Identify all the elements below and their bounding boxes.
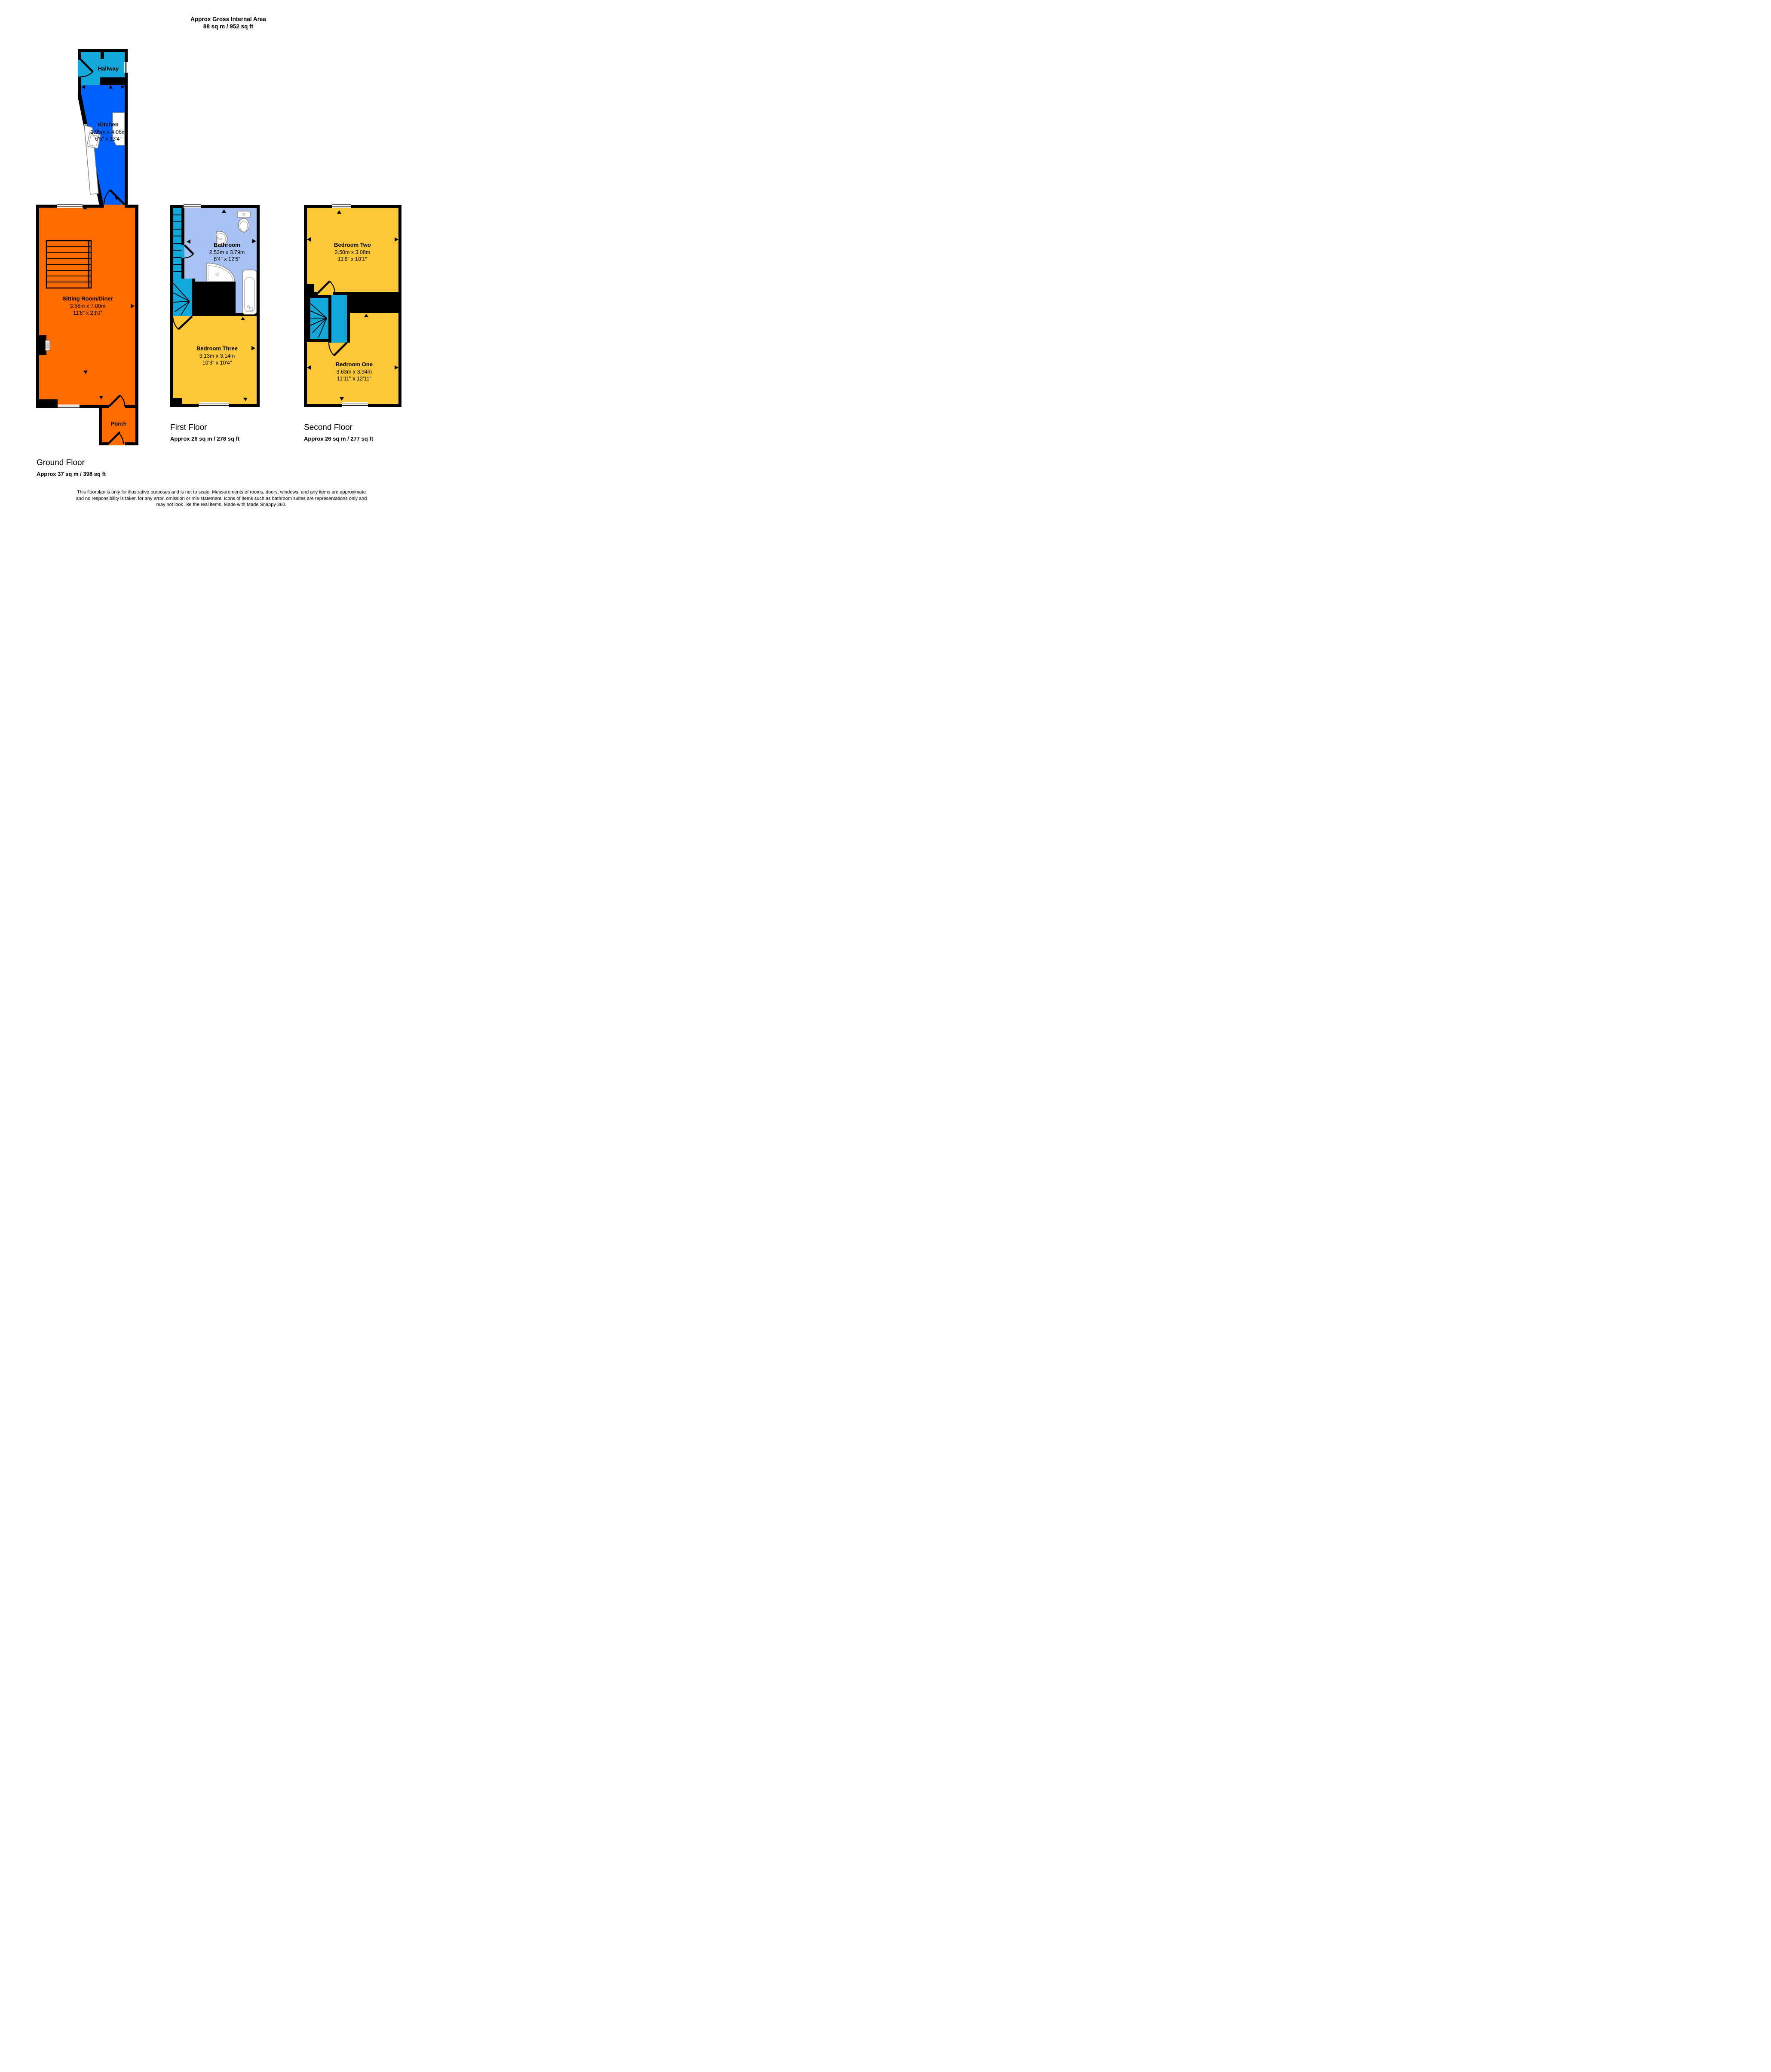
kitchen-label: Kitchen 1.95m x 4.06m 6'5" x 13'4" [91, 121, 126, 143]
landing-wall [192, 279, 195, 316]
bedroom-two-window [332, 203, 351, 208]
bathroom-side-wall [232, 285, 236, 313]
first-floor-plan [169, 202, 261, 409]
sitting-room-label: Sitting Room/Diner 3.56m x 7.00m 11'8" x… [62, 295, 113, 317]
floorplan-canvas: Approx Gross Internal Area 88 sq m / 952… [0, 0, 443, 518]
ground-floor-caption: Ground Floor Approx 37 sq m / 398 sq ft [37, 458, 106, 477]
porch-label: Porch [111, 420, 127, 428]
title-line1: Approx Gross Internal Area [190, 15, 266, 23]
staircase-first [173, 208, 181, 279]
toilet-icon [237, 211, 250, 232]
staircase-second [310, 298, 328, 339]
entrance-door-opening [78, 60, 81, 77]
bathroom-window [184, 203, 201, 208]
bedroom-three-label: Bedroom Three 3.13m x 3.14m 10'3" x 10'4… [196, 345, 238, 367]
bathroom-label: Bathroom 2.53m x 3.79m 8'4" x 12'5" [209, 242, 245, 263]
fireplace-icon [46, 340, 50, 350]
bathroom-lower-wall [195, 282, 236, 285]
bedroom-two-door-opening [318, 292, 333, 295]
bedroom-one-window [342, 402, 368, 408]
bedroom-three-window [199, 402, 229, 408]
porch-door-opening [109, 405, 125, 408]
bathtub-icon [242, 270, 257, 314]
bedroom-one-label: Bedroom One 3.63m x 3.94m 11'11" x 12'11… [336, 361, 373, 383]
bedroom-two-label: Bedroom Two 3.50m x 3.08m 11'6" x 10'1" [334, 242, 371, 263]
bathroom-door-opening [181, 245, 184, 258]
hallway-wall-segment [100, 77, 125, 85]
stairs-wall [181, 208, 184, 279]
disclaimer-line1: This floorplan is only for illustrative … [76, 489, 367, 496]
stair-landing-second [331, 295, 347, 343]
stair-landing-first [173, 279, 192, 316]
hallway-label: Hallway [98, 65, 119, 73]
title-line2: 88 sq m / 952 sq ft [190, 23, 266, 30]
kitchen-door-opening [104, 205, 125, 208]
sitting-bottom-window [58, 405, 80, 410]
first-floor-caption: First Floor Approx 26 sq m / 278 sq ft [170, 423, 239, 442]
second-floor-caption: Second Floor Approx 26 sq m / 277 sq ft [304, 423, 373, 442]
disclaimer-line2: and no responsibility is taken for any e… [76, 496, 367, 502]
page-title: Approx Gross Internal Area 88 sq m / 952… [190, 15, 266, 30]
ground-floor-plan [34, 46, 140, 447]
sitting-top-window [57, 203, 83, 208]
disclaimer-line3: may not look like the real items. Made w… [76, 502, 367, 508]
hallway-window [124, 62, 128, 73]
hallway-wall-stub [101, 52, 104, 59]
disclaimer: This floorplan is only for illustrative … [76, 489, 367, 508]
